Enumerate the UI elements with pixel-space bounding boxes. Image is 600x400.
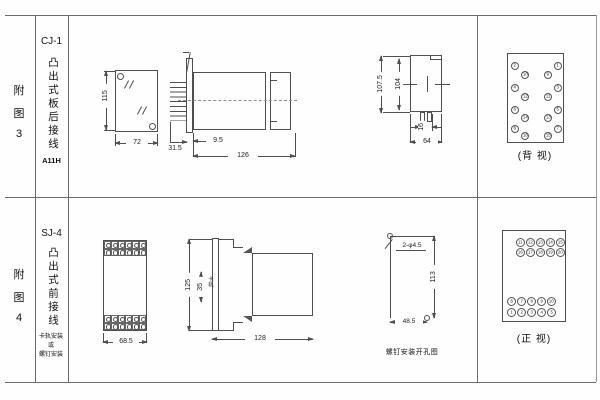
mount-note-line: 或	[34, 342, 68, 351]
terminal-screw-cell	[139, 241, 146, 249]
terminal-15: 15	[556, 238, 565, 247]
cj1-cap-step-line	[270, 80, 277, 81]
leader-line	[385, 239, 393, 249]
section-tick	[427, 76, 428, 92]
cj1-panel-hole	[117, 73, 124, 80]
extension-line	[190, 239, 212, 240]
terminal-screw-cell	[118, 249, 125, 257]
terminal-screw-cell	[111, 315, 118, 323]
cj1-terminal-layout-back: 24681012141691113151357	[507, 53, 564, 143]
figure-4-char: 附	[14, 266, 25, 282]
cj1-bracket-step	[430, 55, 431, 59]
hatch-mark	[136, 106, 148, 115]
sj4-terminal-layout-front: 1112131415161718192067891012345	[502, 230, 566, 322]
cj1-flange	[186, 58, 193, 133]
sj4-step-line	[218, 330, 234, 331]
terminal-screw-cell	[111, 241, 118, 249]
extension-line	[170, 122, 171, 143]
terminal-9: 9	[537, 297, 546, 306]
terminal-screw-cell	[118, 323, 125, 331]
mount-note-line: 螺钉安装	[34, 351, 68, 360]
dim-line-9-5	[193, 141, 206, 142]
table-col-divider-1	[35, 15, 36, 382]
sj4-terminal-strip-top	[104, 241, 146, 256]
dim-68-5: 68.5	[113, 338, 139, 346]
extension-line	[383, 56, 410, 57]
sj4-step-line	[218, 239, 234, 240]
terminal-screw-cell	[104, 323, 111, 331]
terminal-16: 16	[521, 132, 529, 140]
holes-label: 2-φ4.5	[396, 242, 428, 249]
figure-3-char: 3	[16, 128, 22, 140]
sj4-step-gusset	[243, 247, 252, 253]
dim-48-5: 48.5	[395, 318, 423, 325]
cj1-body	[193, 72, 266, 130]
terminal-3: 3	[554, 84, 562, 92]
terminal-screw-cell	[118, 241, 125, 249]
terminal-5: 5	[547, 308, 556, 317]
terminal-2: 2	[517, 308, 526, 317]
terminal-9: 9	[544, 71, 552, 79]
section-tick	[435, 84, 450, 85]
figure-4-label: 附 图 4	[10, 266, 28, 324]
terminal-15: 15	[544, 132, 552, 140]
terminal-10: 10	[521, 71, 529, 79]
dim-line-16	[432, 127, 441, 128]
cj1-bracket-step	[430, 59, 442, 60]
terminal-screw-cell	[132, 315, 139, 323]
terminal-20: 20	[556, 248, 565, 257]
dim-31-5: 31.5	[163, 145, 187, 153]
sj4-body	[252, 253, 313, 316]
sj4-step-line	[233, 247, 243, 248]
terminal-17: 17	[526, 248, 535, 257]
terminal-screw-cell	[132, 323, 139, 331]
front-view-caption: (正 视)	[508, 330, 560, 345]
terminal-12: 12	[521, 93, 529, 101]
dim-125: 125	[185, 273, 193, 297]
terminal-14: 14	[521, 114, 529, 122]
figure-3-label: 附 图 3	[10, 82, 28, 140]
dim-16: 16	[418, 121, 426, 133]
terminal-3: 3	[527, 308, 536, 317]
terminal-5: 5	[554, 106, 562, 114]
dim-line-31-5	[170, 142, 187, 143]
extension-line	[383, 112, 410, 113]
cj1-panel-hole	[149, 123, 156, 130]
terminal-14: 14	[546, 238, 555, 247]
dim-35: 35	[197, 277, 205, 297]
dim-64: 64	[416, 138, 438, 146]
figure-4-char: 图	[14, 289, 25, 305]
extension-line	[441, 114, 442, 143]
figure-3-char: 附	[14, 82, 25, 98]
figure-4-char: 4	[16, 312, 22, 324]
figure-3-char: 图	[14, 105, 25, 121]
terminal-10: 10	[547, 297, 556, 306]
cj1-terminal-pins	[170, 82, 187, 121]
terminal-19: 19	[546, 248, 555, 257]
extension-line	[410, 114, 411, 143]
terminal-screw-cell	[111, 323, 118, 331]
dim-104: 104	[395, 72, 403, 96]
dim-115: 115	[102, 84, 110, 108]
terminal-4: 4	[537, 308, 546, 317]
centerline	[178, 100, 297, 101]
terminal-13: 13	[544, 114, 552, 122]
sj4-step-line	[233, 239, 234, 247]
terminal-18: 18	[536, 248, 545, 257]
terminal-screw-cell	[125, 241, 132, 249]
model-cj1: CJ-1	[38, 36, 65, 47]
table-border-right	[596, 15, 597, 382]
sj4-step-gusset	[243, 316, 252, 322]
terminal-screw-cell	[139, 323, 146, 331]
back-view-caption: (背 视)	[509, 147, 561, 162]
table-col-divider-2	[68, 15, 69, 382]
terminal-1: 1	[554, 62, 562, 70]
mount-type-sj4: 凸出式前接线	[46, 247, 61, 329]
terminal-screw-cell	[125, 249, 132, 257]
terminal-13: 13	[536, 238, 545, 247]
terminal-screw-cell	[104, 241, 111, 249]
dim-113: 113	[430, 265, 438, 289]
code-a11h: A11H	[38, 156, 65, 165]
model-sj4: SJ-4	[38, 228, 65, 239]
dim-126: 126	[228, 152, 258, 160]
drill-diagram-caption: 螺钉安装开孔图	[382, 347, 442, 357]
terminal-screw-cell	[139, 249, 146, 257]
terminal-screw-cell	[132, 241, 139, 249]
table-col-divider-3	[477, 15, 478, 382]
dim-107-5: 107.5	[377, 72, 385, 96]
terminal-7: 7	[554, 125, 562, 133]
terminal-screw-cell	[125, 315, 132, 323]
cj1-mounting-clip-tick	[183, 52, 189, 53]
mount-note-line: 卡轨安装	[34, 333, 68, 342]
terminal-16: 16	[516, 248, 525, 257]
mount-type-cj1: 凸出式板后接线	[46, 57, 61, 155]
hatch-mark	[123, 80, 135, 89]
terminal-screw-cell	[104, 249, 111, 257]
rail-label: 卡轨	[206, 276, 214, 287]
terminal-screw-cell	[104, 315, 111, 323]
sj4-terminal-strip-bottom	[104, 315, 146, 330]
terminal-8: 8	[511, 125, 519, 133]
extension-line	[190, 330, 212, 331]
terminal-6: 6	[507, 297, 516, 306]
cj1-cap-step-line	[270, 121, 277, 122]
leader-underline	[396, 250, 426, 251]
terminal-11: 11	[544, 93, 552, 101]
table-border-top	[5, 15, 596, 16]
terminal-screw-cell	[125, 323, 132, 331]
terminal-12: 12	[526, 238, 535, 247]
terminal-2: 2	[511, 62, 519, 70]
terminal-4: 4	[511, 84, 519, 92]
dim-72: 72	[126, 139, 148, 147]
section-tick	[402, 84, 417, 85]
terminal-8: 8	[527, 297, 536, 306]
dim-9-5: 9.5	[208, 137, 228, 145]
terminal-screw-cell	[132, 249, 139, 257]
sj4-step-line	[233, 322, 234, 330]
sj4-step-line	[233, 322, 243, 323]
terminal-screw-cell	[139, 315, 146, 323]
terminal-6: 6	[511, 106, 519, 114]
drill-construction-line	[390, 236, 391, 318]
terminal-screw-cell	[111, 249, 118, 257]
table-border-bottom	[5, 382, 596, 383]
table-row-divider	[5, 197, 596, 198]
terminal-11: 11	[516, 238, 525, 247]
terminal-7: 7	[517, 297, 526, 306]
dim-128: 128	[245, 335, 275, 343]
drill-construction-line	[390, 236, 434, 237]
terminal-screw-cell	[118, 315, 125, 323]
terminal-1: 1	[507, 308, 516, 317]
relay-installation-drawing-page: 附 图 3 CJ-1 凸出式板后接线 A11H 115 72 9.5 31.5 …	[0, 0, 600, 400]
